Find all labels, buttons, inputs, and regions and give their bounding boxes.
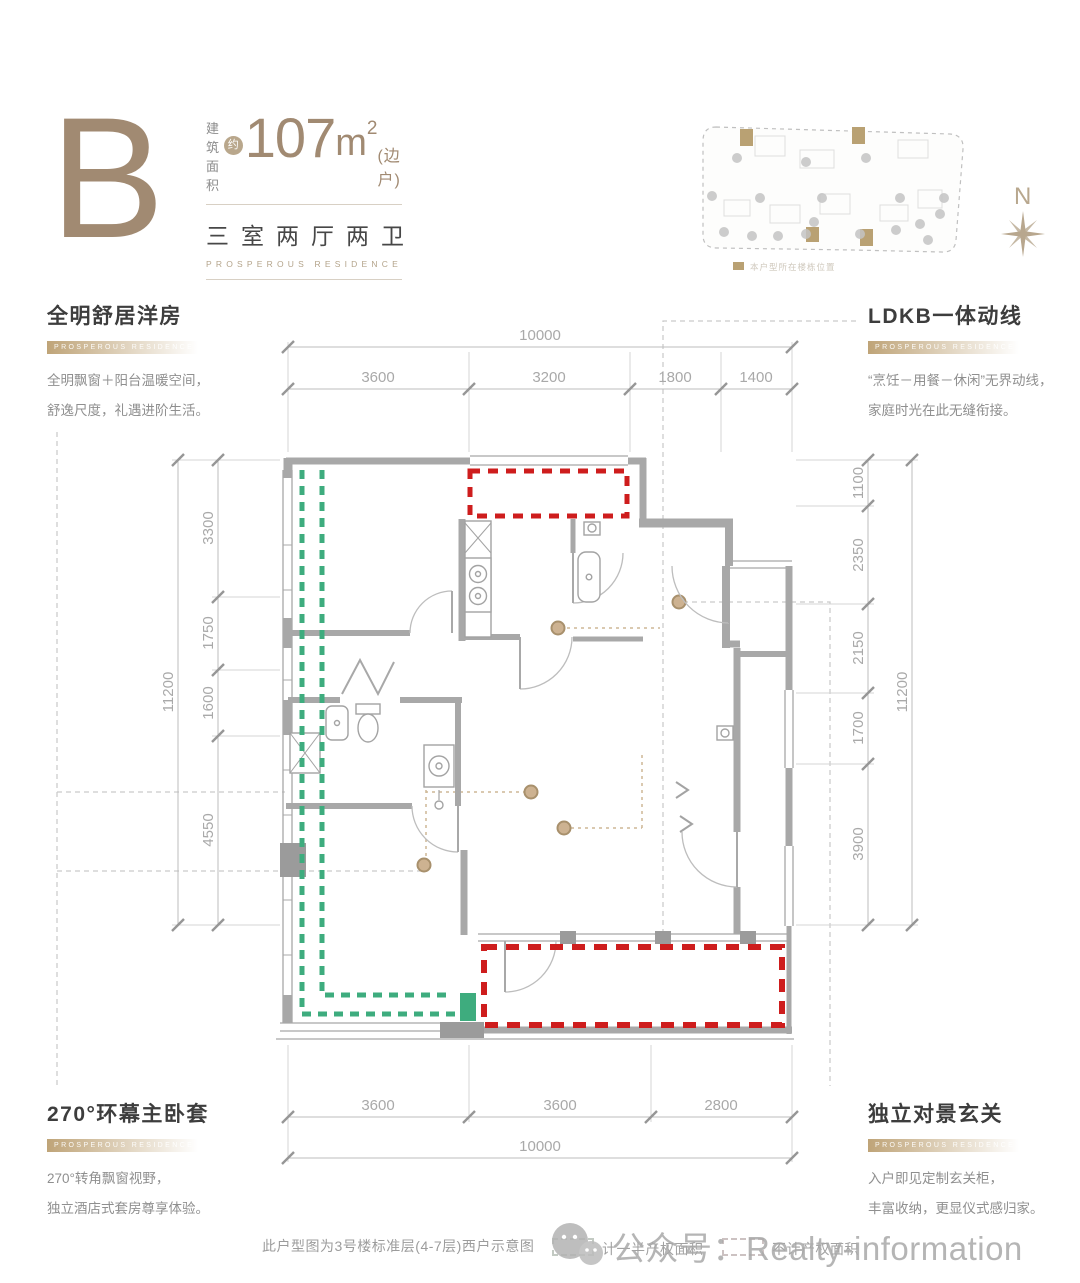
svg-text:4550: 4550 [200,813,217,846]
watermark-text: 公众号：Realty-information [612,1222,1023,1270]
circulation-path-lines [426,628,660,860]
site-plan: 本户型所在楼栋位置 N [703,127,1045,272]
svg-text:3200: 3200 [532,369,565,386]
svg-text:3600: 3600 [543,1097,576,1114]
floorplan-fixtures [290,521,733,832]
svg-text:2800: 2800 [704,1097,737,1114]
svg-text:3300: 3300 [200,511,217,544]
compass: N [1001,183,1045,257]
floorplan-walls [276,456,794,1039]
plan-caption: 此户型图为3号楼标准层(4-7层)西户示意图 [262,1236,534,1256]
watermark: 公众号：Realty-information [548,1220,1023,1272]
svg-text:1750: 1750 [200,616,217,649]
svg-text:2150: 2150 [850,631,867,664]
site-plan-legend-swatch [733,262,744,270]
svg-text:3600: 3600 [361,369,394,386]
site-plan-legend-label: 本户型所在楼栋位置 [750,262,836,272]
compass-north-label: N [1014,183,1031,210]
floorplan-page: B 建筑 面积 约 107 m 2 (边户) 三室两厅两卫 PROSPEROUS… [0,0,1080,1283]
svg-text:1100: 1100 [850,467,867,499]
floorplan-doors [342,553,737,992]
svg-text:1800: 1800 [658,369,691,386]
svg-text:1400: 1400 [739,369,772,386]
svg-text:11200: 11200 [894,672,911,713]
svg-text:10000: 10000 [519,327,561,344]
floorplan-drawing: 本户型所在楼栋位置 N [0,0,1080,1283]
svg-text:1700: 1700 [850,711,867,744]
svg-text:3600: 3600 [361,1097,394,1114]
svg-text:2350: 2350 [850,538,867,571]
svg-text:10000: 10000 [519,1138,561,1155]
svg-text:3900: 3900 [850,827,867,860]
wechat-icon [548,1220,608,1272]
svg-text:11200: 11200 [160,672,177,713]
compass-star-icon [1001,211,1045,257]
svg-text:1600: 1600 [200,686,217,719]
